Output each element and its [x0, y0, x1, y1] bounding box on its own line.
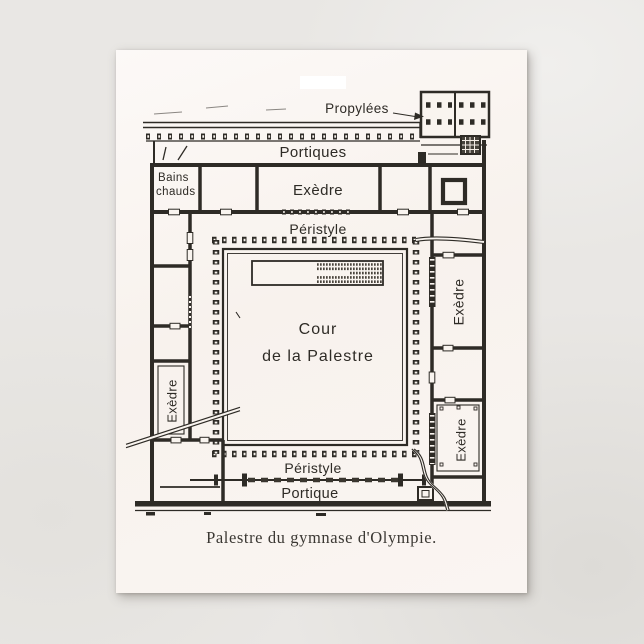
- top-rooms: Bains chauds Exèdre: [152, 165, 484, 215]
- court-pool: [252, 261, 383, 285]
- corner-square-chamber: [443, 180, 465, 203]
- label-portique: Portique: [281, 486, 338, 502]
- label-exedre-right: Exèdre: [451, 279, 467, 326]
- sketch-marks: [154, 106, 286, 114]
- label-de-la-palestre: de la Palestre: [262, 348, 374, 365]
- marble-background: Propylées Portiques: [0, 0, 644, 644]
- label-chauds: chauds: [156, 186, 195, 198]
- label-exedre-top: Exèdre: [293, 182, 343, 199]
- court-labels: Cour de la Palestre: [236, 312, 374, 365]
- bottom-baseline: [135, 501, 491, 516]
- label-cour: Cour: [299, 321, 338, 338]
- label-peristyle-bottom: Péristyle: [284, 460, 341, 476]
- right-wing: Exèdre Exèdre: [418, 212, 484, 502]
- white-tab: [300, 76, 346, 89]
- top-colonnade: [146, 137, 420, 142]
- bottom-band: Péristyle Portique: [190, 460, 427, 502]
- propylees-label-group: Propylées: [325, 101, 424, 120]
- propylees-building: [421, 92, 489, 137]
- label-exedre-bottom-right: Exèdre: [454, 418, 469, 462]
- postcard: Propylées Portiques: [116, 50, 527, 593]
- label-portiques: Portiques: [280, 144, 347, 161]
- label-exedre-left: Exèdre: [165, 379, 180, 423]
- floor-plan-drawing: Propylées Portiques: [116, 50, 527, 593]
- label-peristyle-top: Péristyle: [289, 221, 346, 237]
- label-bains: Bains: [158, 172, 189, 184]
- portiques-corridor: Portiques: [154, 141, 346, 164]
- right-corridor: [418, 136, 487, 163]
- pointer-line: [393, 113, 415, 117]
- left-wing: Exèdre: [152, 212, 223, 502]
- postcard-caption: Palestre du gymnase d'Olympie.: [116, 528, 527, 548]
- label-propylees: Propylées: [325, 101, 389, 116]
